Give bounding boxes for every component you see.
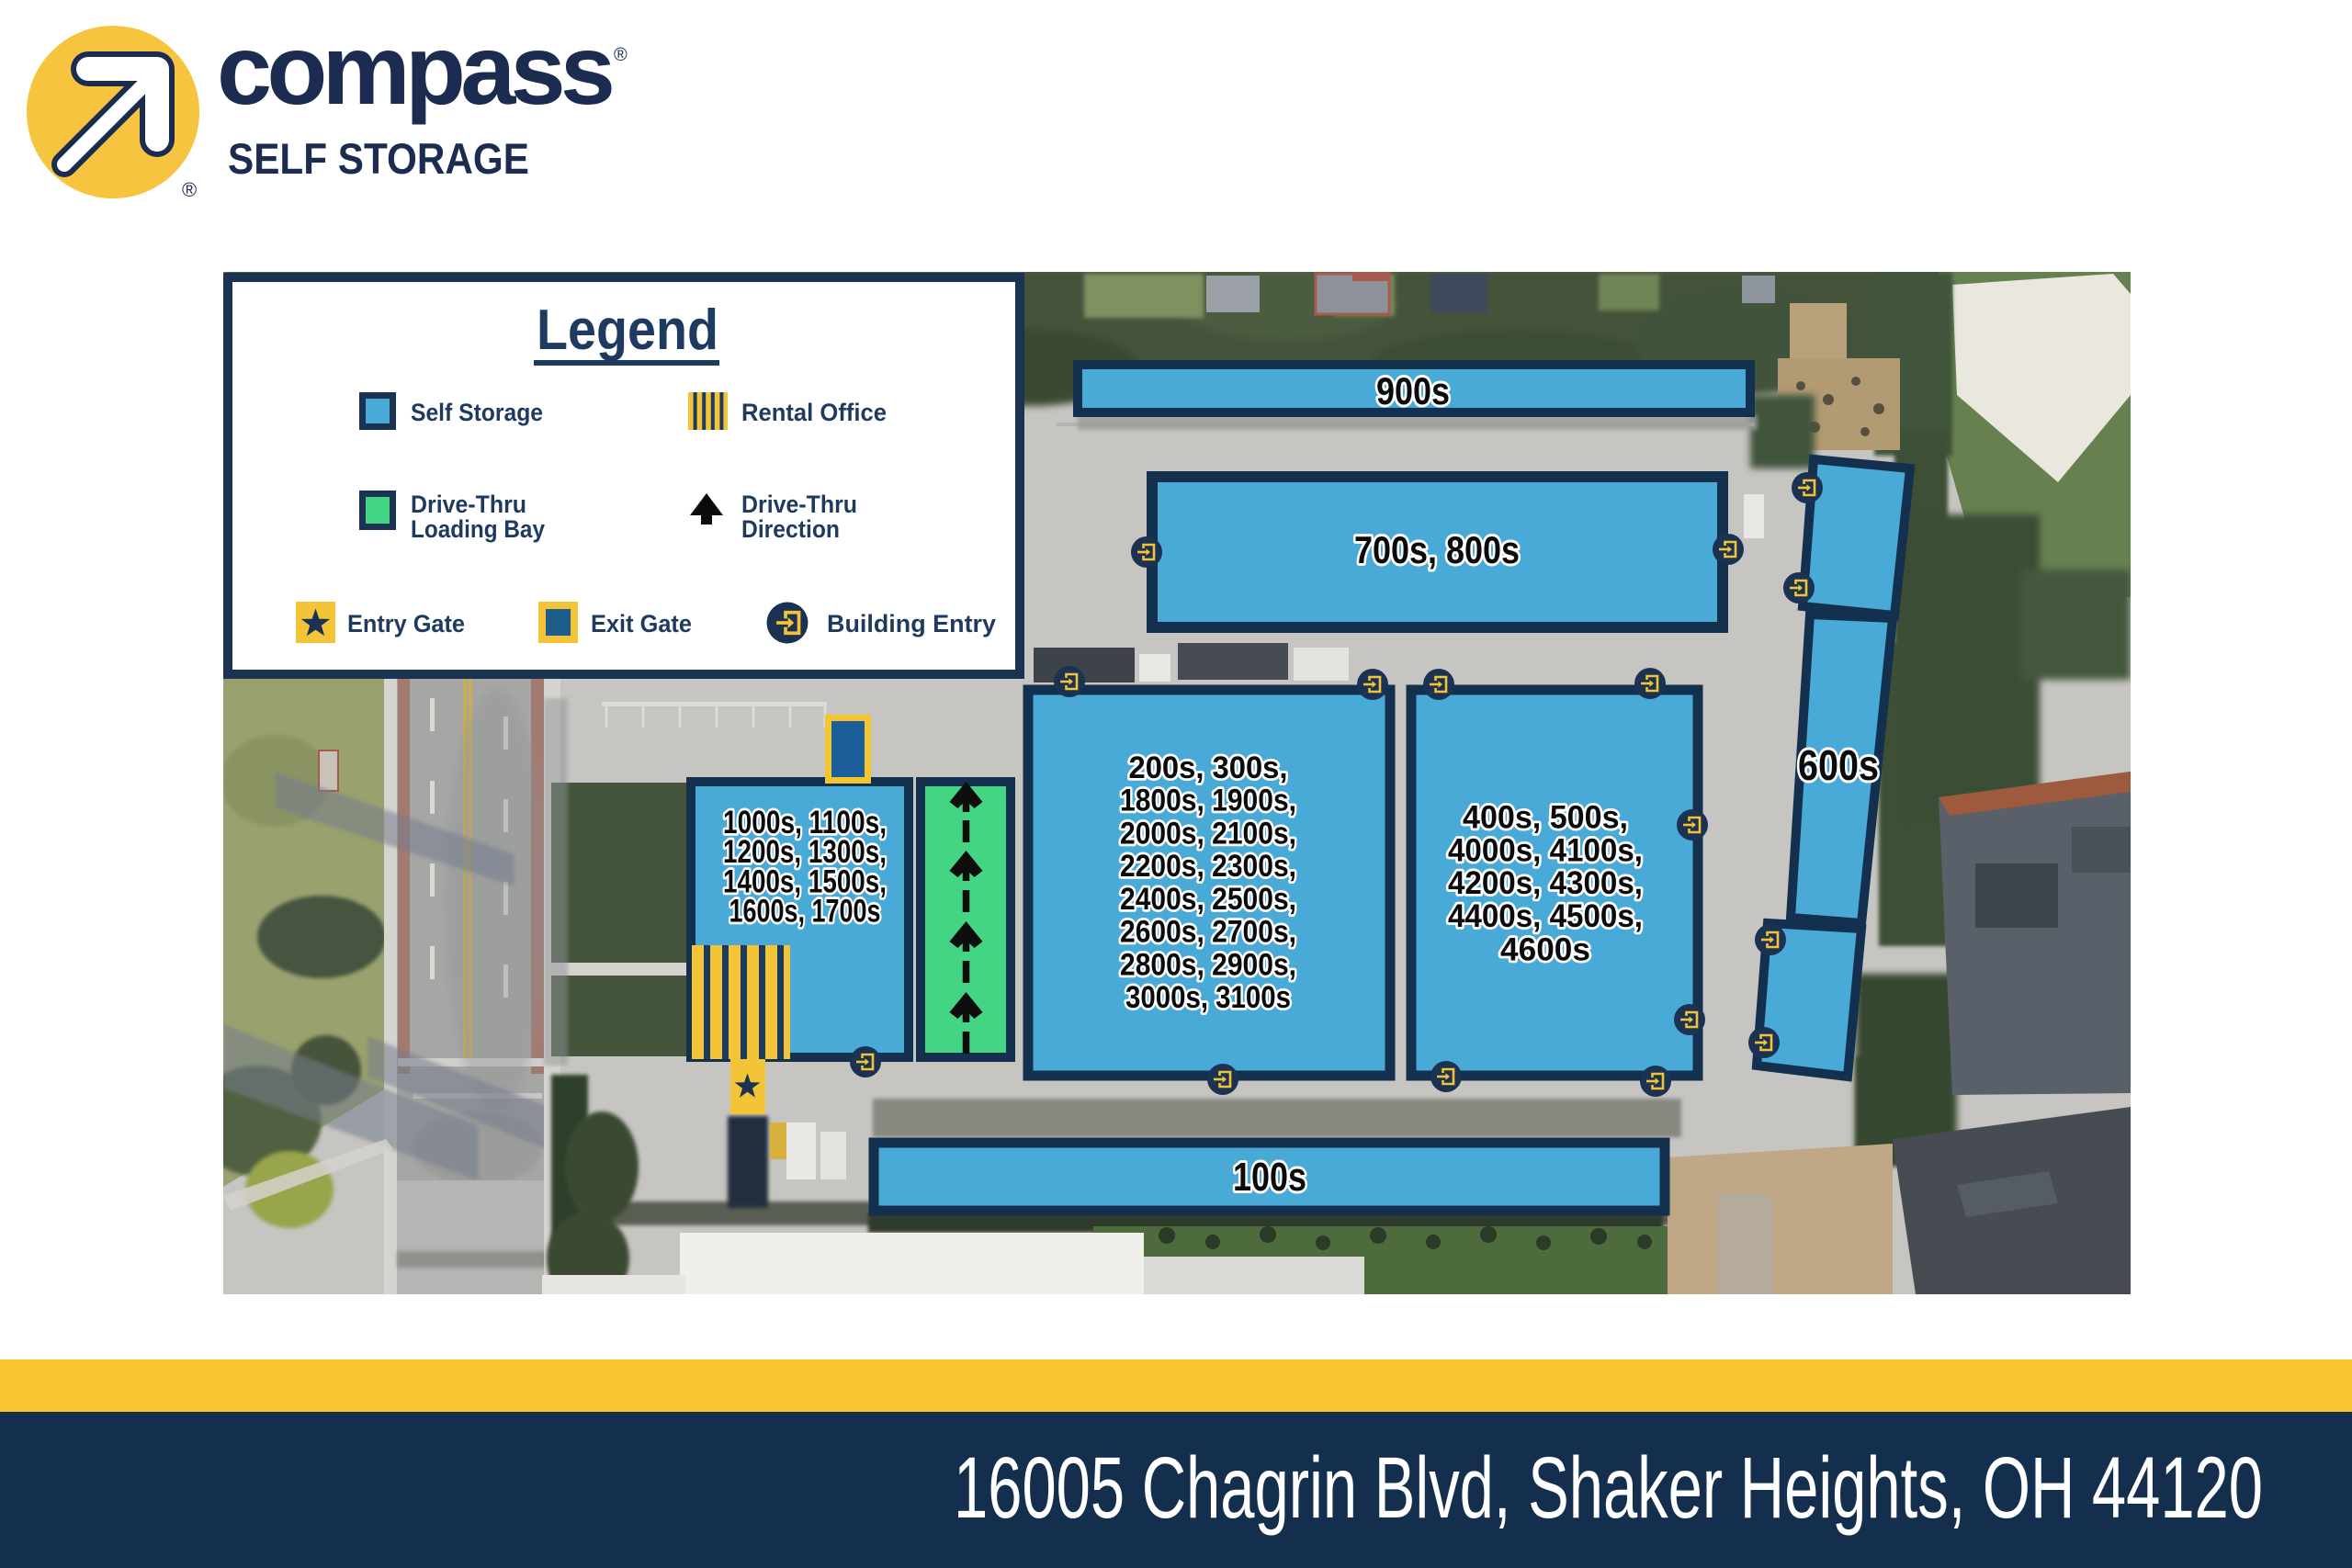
svg-text:2400s, 2500s,: 2400s, 2500s, <box>1120 882 1296 917</box>
svg-text:1600s, 1700s: 1600s, 1700s <box>729 894 881 930</box>
svg-text:100s: 100s <box>1233 1155 1306 1200</box>
svg-text:Drive-Thru: Drive-Thru <box>411 491 526 518</box>
svg-text:4600s: 4600s <box>1500 931 1590 967</box>
svg-text:Building Entry: Building Entry <box>827 610 996 637</box>
svg-text:SELF STORAGE: SELF STORAGE <box>228 134 529 183</box>
svg-text:4000s, 4100s,: 4000s, 4100s, <box>1448 832 1643 868</box>
svg-text:Direction: Direction <box>741 515 840 543</box>
svg-text:®: ® <box>182 178 197 201</box>
svg-text:700s, 800s: 700s, 800s <box>1354 528 1520 571</box>
svg-text:Loading Bay: Loading Bay <box>411 515 545 543</box>
svg-text:3000s, 3100s: 3000s, 3100s <box>1125 980 1291 1015</box>
svg-text:Self Storage: Self Storage <box>411 399 543 426</box>
svg-text:Drive-Thru: Drive-Thru <box>741 491 857 518</box>
svg-text:Legend: Legend <box>537 299 718 362</box>
svg-text:2600s, 2700s,: 2600s, 2700s, <box>1120 915 1296 950</box>
svg-text:Exit Gate: Exit Gate <box>591 610 692 637</box>
svg-text:®: ® <box>614 45 628 65</box>
svg-text:600s: 600s <box>1798 741 1879 789</box>
svg-text:compass: compass <box>217 14 616 125</box>
svg-text:16005 Chagrin Blvd, Shaker Hei: 16005 Chagrin Blvd, Shaker Heights, OH 4… <box>954 1439 2263 1537</box>
svg-text:200s, 300s,: 200s, 300s, <box>1129 750 1288 785</box>
svg-text:2000s, 2100s,: 2000s, 2100s, <box>1120 816 1296 851</box>
svg-text:900s: 900s <box>1376 369 1450 412</box>
svg-text:400s, 500s,: 400s, 500s, <box>1463 800 1628 836</box>
svg-text:Rental Office: Rental Office <box>741 399 887 426</box>
svg-text:2200s, 2300s,: 2200s, 2300s, <box>1120 849 1296 884</box>
svg-text:4200s, 4300s,: 4200s, 4300s, <box>1448 865 1643 901</box>
svg-text:4400s, 4500s,: 4400s, 4500s, <box>1448 898 1643 934</box>
svg-text:2800s, 2900s,: 2800s, 2900s, <box>1120 947 1296 982</box>
svg-text:Entry Gate: Entry Gate <box>347 610 465 637</box>
svg-text:1800s, 1900s,: 1800s, 1900s, <box>1120 784 1296 818</box>
